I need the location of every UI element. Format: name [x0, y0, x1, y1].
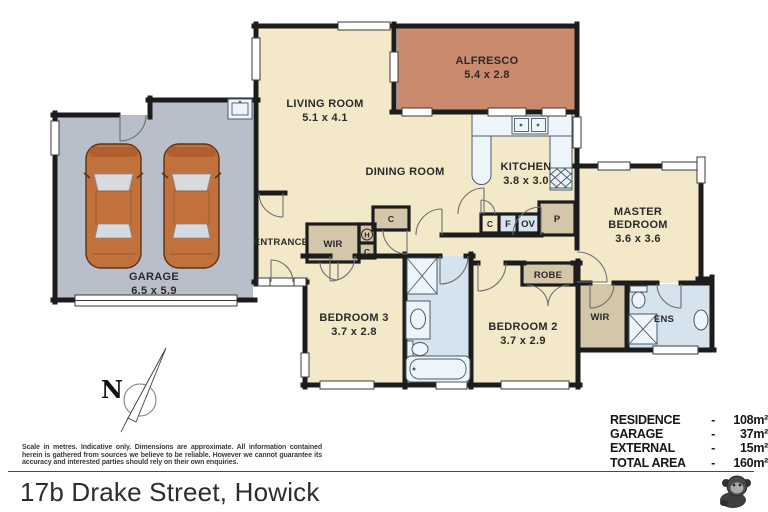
pantry-label: P	[554, 214, 561, 225]
robe-label: ROBE	[534, 270, 562, 281]
window	[51, 121, 59, 155]
cold-cupboard-label: C	[364, 247, 370, 257]
front-door-opening	[270, 278, 294, 286]
area-summary-table: RESIDENCE - 108m² GARAGE - 37m² EXTERNAL…	[610, 413, 768, 470]
window	[301, 353, 309, 377]
window	[653, 346, 698, 354]
window	[662, 162, 698, 170]
window-sidelight	[258, 278, 270, 286]
area-label: EXTERNAL	[610, 441, 706, 455]
room-alfresco	[397, 26, 577, 110]
window	[390, 52, 398, 82]
shower-icon	[629, 314, 657, 344]
garage-dims: 6.5 x 5.9	[131, 285, 177, 297]
bathtub-icon	[406, 356, 470, 382]
bedroom3-dims: 3.7 x 2.8	[331, 326, 377, 338]
laundry-tub-icon	[228, 99, 252, 119]
window	[573, 117, 581, 148]
dining-room-label: DINING ROOM	[365, 166, 444, 178]
window	[488, 108, 526, 116]
window	[542, 108, 566, 116]
alfresco-label: ALFRESCO	[456, 55, 519, 67]
vanity-sink-icon	[406, 301, 430, 339]
north-label: N	[101, 375, 123, 404]
toilet-icon	[407, 341, 428, 357]
window	[252, 38, 260, 80]
car-icon	[162, 144, 221, 268]
area-row-garage: GARAGE - 37m²	[610, 427, 768, 441]
area-value: 160m²	[720, 456, 768, 470]
kitchen-label: KITCHEN	[501, 161, 552, 173]
divider-line	[8, 471, 754, 472]
oven-label: OV	[521, 219, 535, 230]
hot-water-label: H	[364, 231, 369, 240]
stove-icon	[550, 168, 572, 188]
car-icon	[84, 144, 143, 268]
area-separator: -	[706, 427, 720, 441]
living-room-label: LIVING ROOM	[286, 98, 363, 110]
alfresco-dims: 5.4 x 2.8	[464, 69, 510, 81]
address-title: 17b Drake Street, Howick	[20, 477, 320, 508]
master-bedroom-label2: BEDROOM	[608, 219, 668, 231]
area-value: 37m²	[720, 427, 768, 441]
bedroom2-dims: 3.7 x 2.9	[500, 335, 546, 347]
room-garage	[55, 100, 253, 300]
cupboard-small-label: C	[487, 219, 493, 229]
area-separator: -	[706, 413, 720, 427]
garage-label: GARAGE	[129, 271, 179, 283]
compass-icon: N	[101, 348, 166, 432]
area-label: RESIDENCE	[610, 413, 706, 427]
window	[501, 381, 569, 389]
bedroom2-label: BEDROOM 2	[488, 321, 557, 333]
window	[697, 157, 705, 183]
window	[402, 108, 432, 116]
window	[320, 381, 374, 389]
bedroom3-label: BEDROOM 3	[319, 312, 388, 324]
area-label: TOTAL AREA	[610, 456, 706, 470]
area-row-total: TOTAL AREA - 160m²	[610, 456, 768, 470]
window	[338, 22, 390, 30]
window	[598, 162, 630, 170]
cupboard-top-label: C	[388, 214, 394, 224]
kitchen-dims: 3.8 x 3.0	[503, 175, 549, 187]
kitchen-island	[472, 136, 491, 185]
disclaimer-text: Scale in metres. Indicative only. Dimens…	[22, 444, 322, 467]
area-row-residence: RESIDENCE - 108m²	[610, 413, 768, 427]
basin-icon	[694, 310, 708, 330]
floor-plan-page: ALFRESCO 5.4 x 2.8 LIVING ROOM 5.1 x 4.1…	[0, 0, 768, 512]
ensuite-label: ENS	[654, 314, 674, 325]
shower-icon	[407, 258, 437, 294]
master-bedroom-label: MASTER	[614, 206, 662, 218]
area-separator: -	[706, 456, 720, 470]
living-room-dims: 5.1 x 4.1	[302, 112, 348, 124]
hall-wir-label: WIR	[323, 239, 342, 250]
area-label: GARAGE	[610, 427, 706, 441]
fridge-label: F	[505, 219, 511, 230]
area-value: 15m²	[720, 441, 768, 455]
area-separator: -	[706, 441, 720, 455]
area-value: 108m²	[720, 413, 768, 427]
master-wir-label: WIR	[590, 312, 609, 323]
agency-logo-icon	[720, 476, 751, 508]
entrance-label: ENTRANCE	[254, 237, 308, 248]
master-bedroom-dims: 3.6 x 3.6	[615, 233, 661, 245]
kitchen-sink-icon	[512, 116, 548, 134]
window-sidelight	[294, 278, 306, 286]
area-row-external: EXTERNAL - 15m²	[610, 441, 768, 455]
